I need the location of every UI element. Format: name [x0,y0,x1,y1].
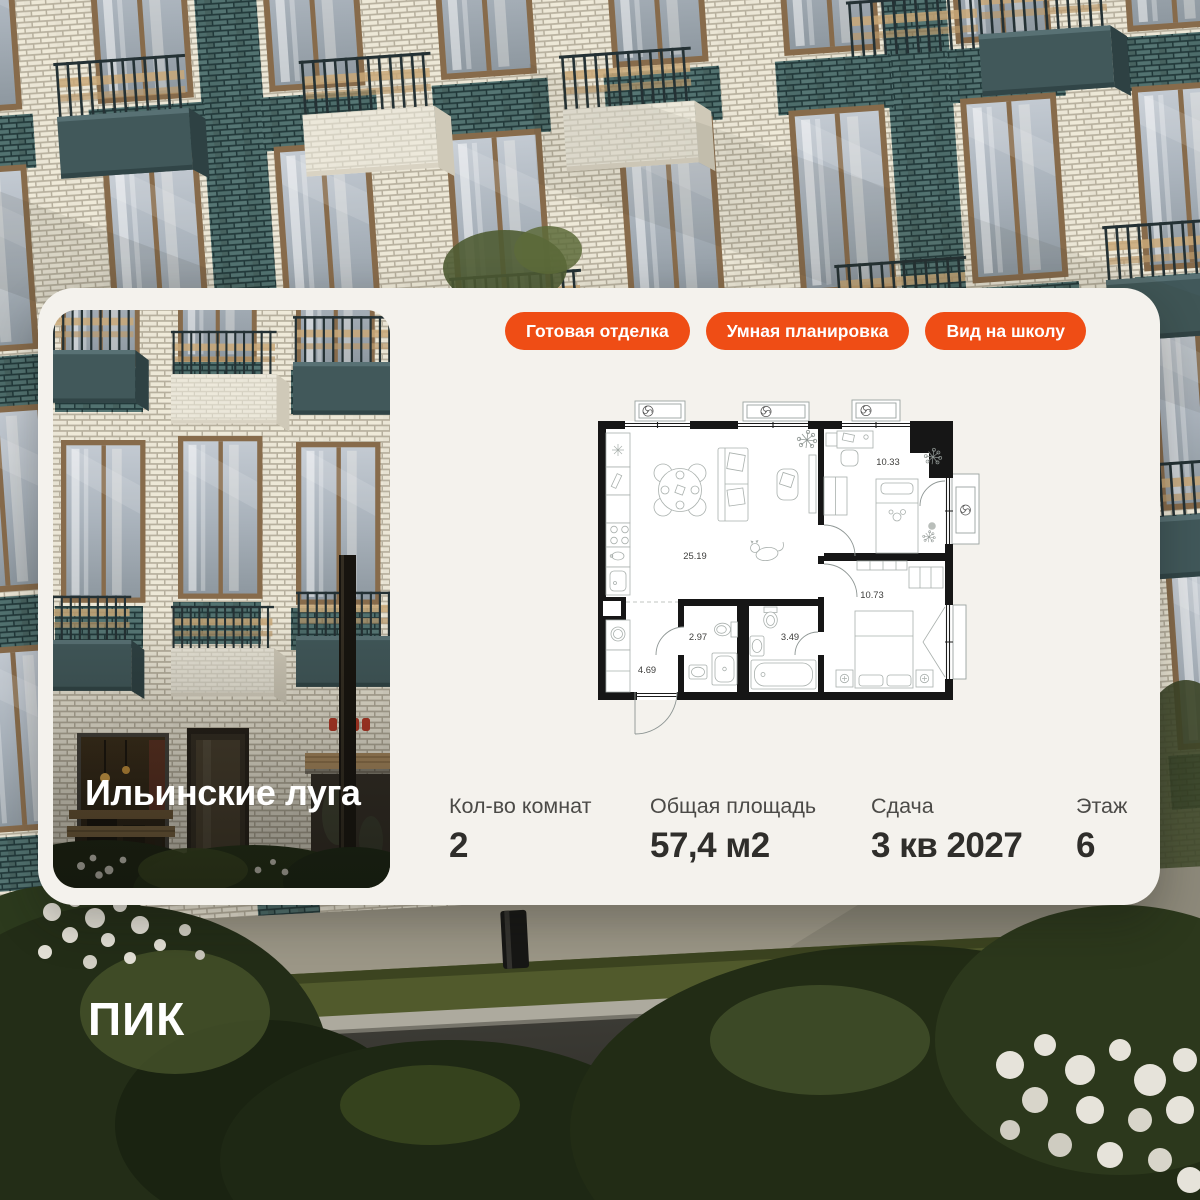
stat-area: Общая площадь 57,4 м2 [650,794,816,866]
shelf [809,455,816,513]
room-area-label: 2.97 [689,631,707,642]
badges-row: Готовая отделка Умная планировка Вид на … [505,312,1086,350]
stat-label: Сдача [871,794,1022,819]
stat-label: Общая площадь [650,794,816,819]
dining-table [654,464,706,516]
pik-logo: ПИК [88,992,185,1046]
room-area-label: 4.69 [638,664,656,675]
room-area-label: 10.33 [876,456,899,467]
plant-icon [928,522,936,530]
stat-value: 6 [1076,826,1127,866]
sofa [718,448,748,521]
room-area-label: 3.49 [781,631,799,642]
project-name: Ильинские луга [85,772,360,814]
badge-school-view[interactable]: Вид на школу [925,312,1086,350]
fan-icon [961,505,971,515]
floor-plan: 25.19 10.33 10.73 2.97 3.49 4.69 [585,393,1005,743]
badge-smart-layout[interactable]: Умная планировка [706,312,910,350]
washing-machine [606,620,630,692]
kitchen-counter [606,433,630,595]
fan-icon [643,406,653,416]
stat-floor: Этаж 6 [1076,794,1127,866]
stat-delivery: Сдача 3 кв 2027 [871,794,1022,866]
stat-value: 57,4 м2 [650,826,816,866]
fan-icon [861,405,871,415]
armchair [777,469,798,500]
stat-value: 2 [449,826,591,866]
stat-label: Этаж [1076,794,1127,819]
real-estate-ad-banner: Ильинские луга Готовая отделка Умная пла… [0,0,1200,1200]
badge-finishing[interactable]: Готовая отделка [505,312,690,350]
listing-card: Ильинские луга Готовая отделка Умная пла… [38,288,1160,905]
bollard [500,910,529,969]
project-photo: Ильинские луга [53,310,390,888]
stat-label: Кол-во комнат [449,794,591,819]
stat-rooms: Кол-во комнат 2 [449,794,591,866]
room-area-label: 10.73 [860,589,883,600]
stat-value: 3 кв 2027 [871,826,1022,866]
tree-foliage [514,226,582,274]
room-area-label: 25.19 [683,550,706,561]
fan-icon [761,406,771,416]
